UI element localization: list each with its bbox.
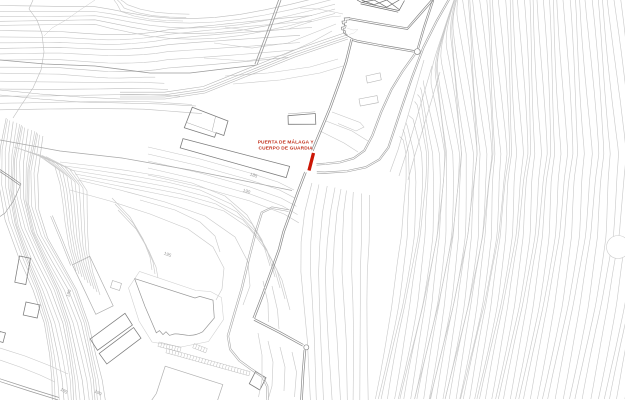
svg-text:CUERPO DE GUARDIA: CUERPO DE GUARDIA bbox=[259, 146, 314, 152]
svg-text:185: 185 bbox=[249, 172, 258, 179]
svg-text:PUERTA DE MÁLAGA Y: PUERTA DE MÁLAGA Y bbox=[258, 138, 315, 145]
svg-text:195: 195 bbox=[163, 251, 172, 258]
